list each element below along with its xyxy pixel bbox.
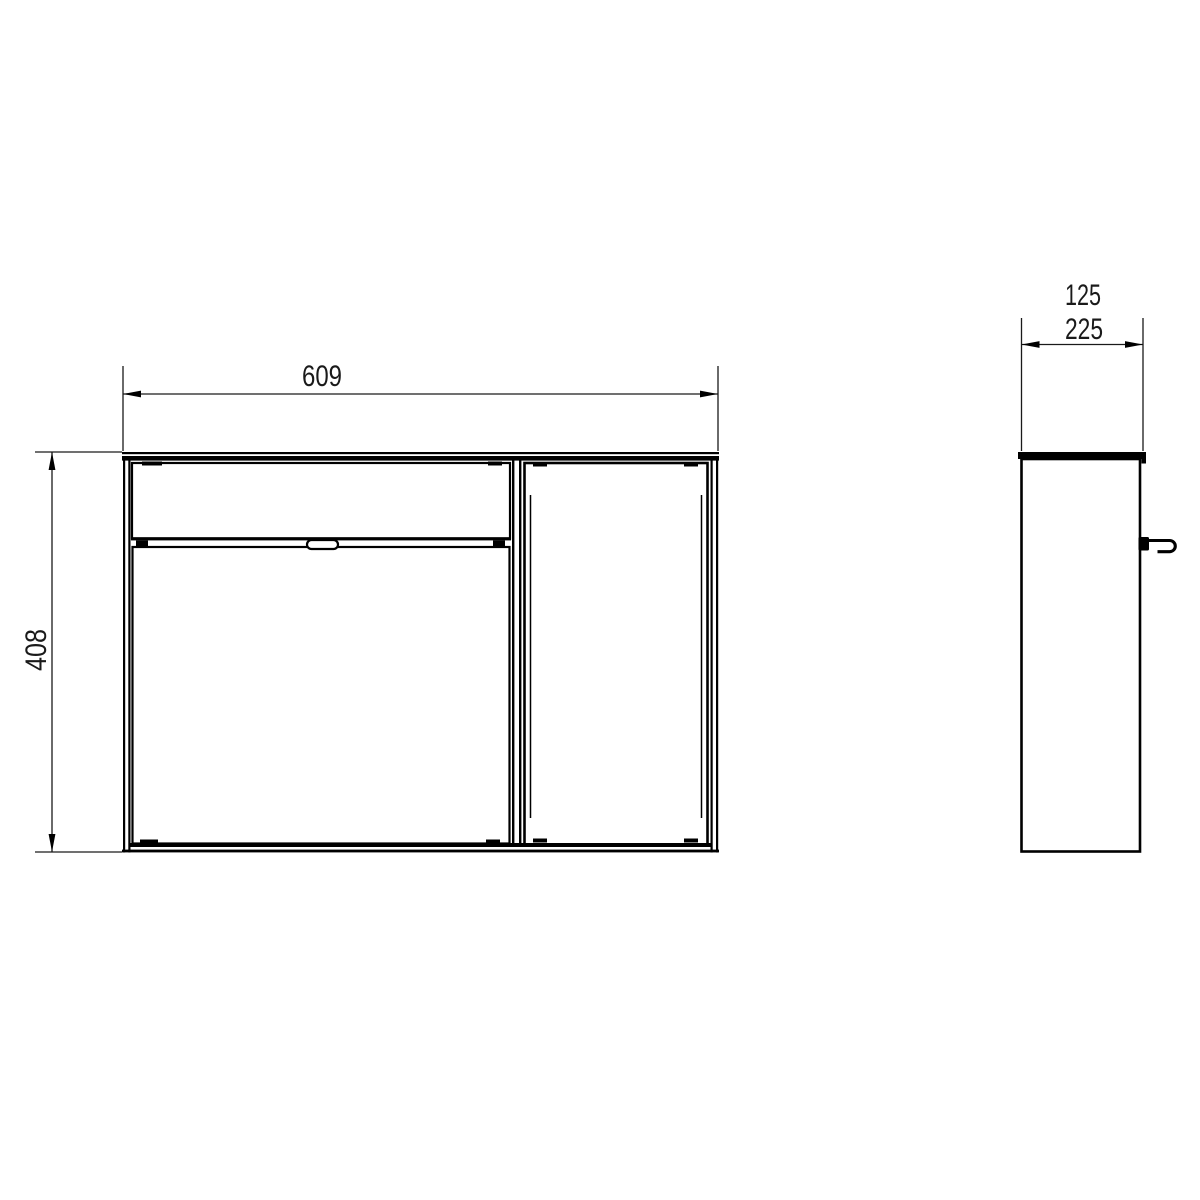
dimension-height-label: 408 — [20, 629, 53, 671]
door-pull-handle — [1139, 537, 1176, 552]
lower-panel-outline — [133, 547, 510, 844]
side-top-panel-lip — [1142, 459, 1147, 464]
arrowhead-bottom — [49, 834, 56, 852]
hinge-tick — [684, 463, 698, 467]
lower-front-panel — [133, 547, 510, 844]
handle-mount-block — [1139, 537, 1150, 551]
divider-line-right — [519, 461, 521, 846]
mail-flap-panel — [131, 463, 511, 540]
flap-handle-slot — [307, 540, 338, 549]
hinge-tick — [142, 462, 162, 466]
left-wall-inner — [128, 461, 130, 853]
top-panel-face — [122, 456, 719, 461]
arrowhead-top — [49, 452, 56, 470]
hinge-tick — [533, 463, 547, 467]
hinge-tick — [140, 840, 158, 844]
center-divider — [512, 461, 521, 846]
flap-outline — [132, 463, 510, 539]
drawing-canvas: 609 408 — [0, 0, 1200, 1200]
fitting-marks — [136, 462, 698, 844]
dimension-depth-label: 225 — [1065, 313, 1103, 346]
arrowhead-left — [1022, 341, 1040, 348]
bottom-edge-outer — [122, 850, 719, 853]
right-wall-inner — [711, 461, 713, 853]
dimension-width-label: 609 — [302, 360, 342, 393]
side-body-outline — [1022, 459, 1141, 852]
hinge-tick — [486, 840, 500, 844]
hinge-tick — [488, 462, 502, 466]
arrowhead-left — [123, 391, 141, 398]
pivot-block — [493, 541, 505, 548]
dimension-depth: 125 225 — [1022, 279, 1144, 451]
hinge-tick — [533, 839, 547, 843]
arrowhead-right — [1125, 341, 1143, 348]
cabinet-walls — [122, 461, 719, 853]
technical-drawing: 609 408 — [0, 0, 1200, 1200]
dimension-width: 609 — [123, 360, 718, 451]
arrowhead-right — [700, 391, 718, 398]
left-wall-outer — [123, 461, 125, 853]
dimension-height: 408 — [20, 452, 122, 852]
front-view: 609 408 — [20, 360, 719, 853]
divider-line-left — [512, 461, 514, 846]
top-panel — [122, 452, 719, 461]
door-outline — [525, 463, 708, 845]
top-panel-edge — [122, 452, 719, 454]
dimension-depth-upper-label: 125 — [1065, 279, 1101, 312]
pivot-block — [136, 541, 148, 548]
right-wall-outer — [716, 461, 718, 853]
handle-hook — [1148, 541, 1175, 552]
side-view: 125 225 — [1018, 279, 1175, 852]
storage-door — [525, 463, 708, 845]
hinge-tick — [684, 839, 698, 843]
